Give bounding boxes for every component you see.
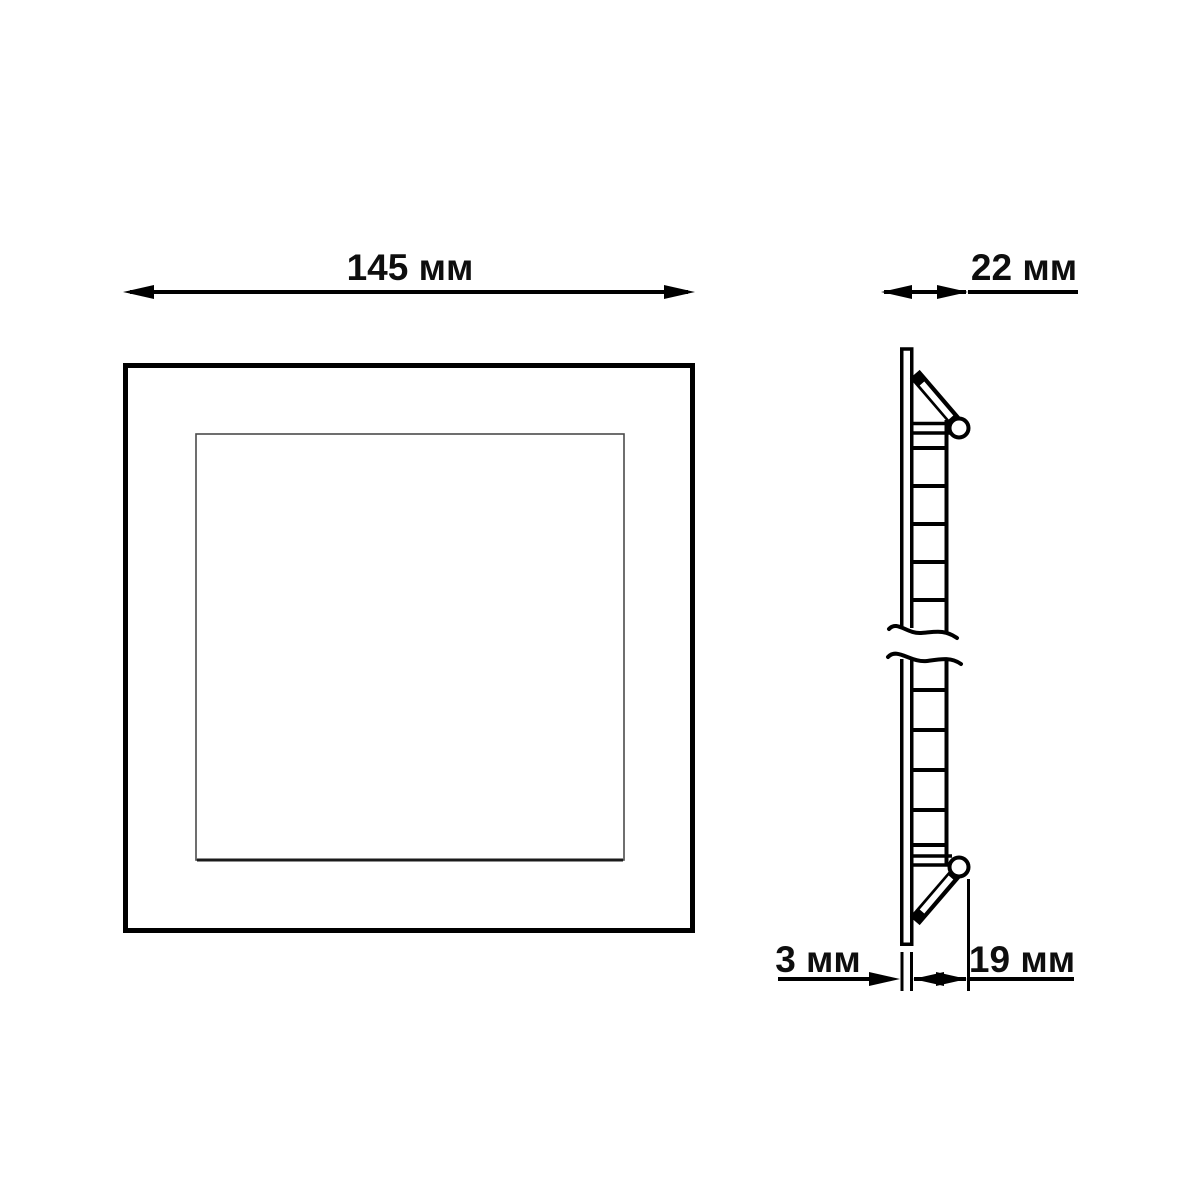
- dim-recess-arrow-right: [936, 972, 967, 986]
- dim-flange: 3 мм: [775, 939, 911, 991]
- dim-width-arrow-right: [664, 285, 695, 299]
- dim-depth-arrow-right: [937, 285, 968, 299]
- dim-depth-label: 22 мм: [971, 247, 1077, 288]
- dim-flange-arrow: [869, 972, 900, 986]
- technical-drawing-canvas: 145 мм 22 мм: [0, 0, 1200, 1200]
- led-panel-dimension-drawing: 145 мм 22 мм: [0, 0, 1200, 1200]
- dim-width-arrow-left: [123, 285, 154, 299]
- dim-flange-label: 3 мм: [775, 939, 861, 980]
- body-upper-section: [913, 420, 948, 634]
- body-lower-section: [913, 661, 948, 866]
- side-view: [888, 349, 969, 944]
- panel-inner-diffuser: [196, 434, 624, 860]
- front-flange-upper: [902, 349, 912, 628]
- spring-clip-pivot: [950, 858, 969, 877]
- dim-depth: 22 мм: [881, 247, 1078, 299]
- spring-clip-top: [919, 379, 969, 438]
- clip-arm-core: [922, 878, 951, 912]
- dim-depth-arrow-left: [881, 285, 912, 299]
- dim-recess-label: 19 мм: [969, 939, 1075, 980]
- break-line-lower: [888, 654, 961, 664]
- spring-clip-pivot: [950, 419, 969, 438]
- front-flange-lower: [902, 659, 912, 944]
- clip-arm-core: [922, 384, 951, 418]
- front-view: [126, 366, 693, 931]
- dim-width: 145 мм: [123, 247, 695, 299]
- dim-width-label: 145 мм: [347, 247, 474, 288]
